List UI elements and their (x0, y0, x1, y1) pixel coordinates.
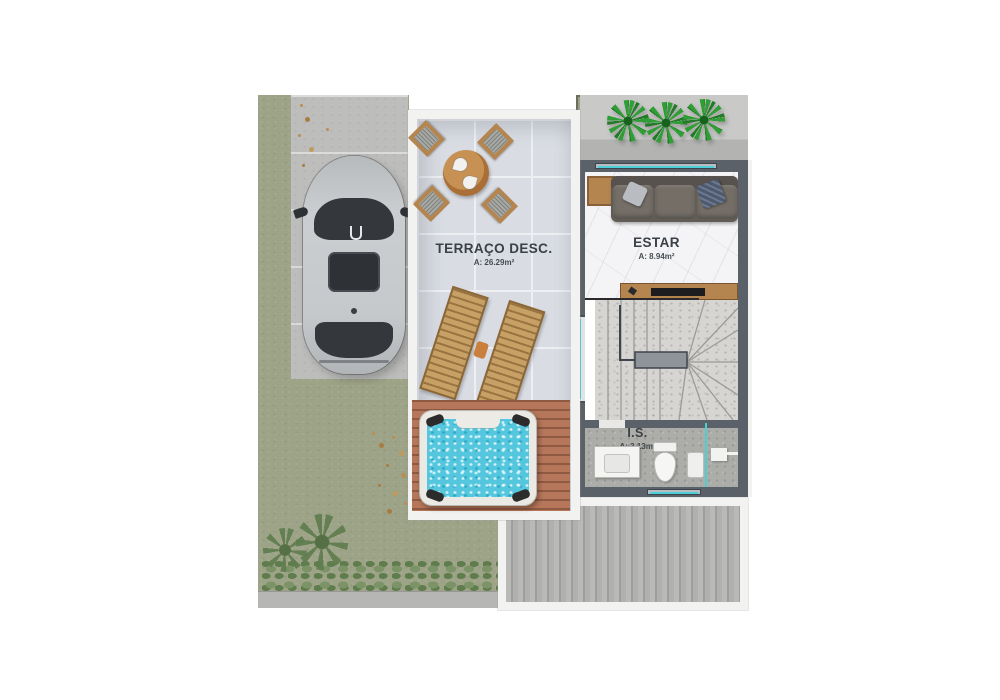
terrace: TERRAÇO DESC. A: 26.29m² (408, 110, 580, 520)
jacuzzi-water (427, 419, 529, 497)
room-area: A: 26.29m² (417, 258, 571, 268)
terraco-label: TERRAÇO DESC. A: 26.29m² (417, 241, 571, 268)
jacuzzi-control-panel (456, 413, 500, 428)
tv (651, 288, 705, 296)
estar-label: ESTAR A: 8.94m² (605, 235, 708, 262)
console-object (628, 287, 637, 296)
jacuzzi-deck (412, 400, 570, 511)
chair (413, 185, 450, 222)
chair (481, 187, 518, 224)
room-name: I.S. (600, 426, 675, 442)
toilet-tank (653, 442, 677, 452)
window (647, 489, 701, 495)
sofa (611, 176, 738, 222)
shower-glass-partition (705, 423, 707, 487)
jacuzzi (419, 410, 537, 506)
stair-treads (595, 300, 738, 420)
pebbles (372, 432, 375, 435)
winder-staircase (595, 300, 738, 420)
window (595, 163, 717, 169)
shower-arm (727, 452, 738, 455)
car-detail (351, 308, 357, 314)
house: ESTAR A: 8.94m² (575, 160, 748, 497)
car-sunroof (328, 252, 380, 292)
toilet-bowl (654, 452, 676, 482)
car-rear-window (315, 322, 393, 358)
wall (738, 160, 748, 497)
pebbles (300, 104, 303, 107)
shower-head (711, 448, 727, 461)
plant-icon (607, 100, 649, 142)
room-name: TERRAÇO DESC. (417, 241, 571, 258)
plate (453, 157, 469, 173)
sofa-cushion (655, 185, 695, 219)
car-top-view (303, 156, 405, 374)
vanity-sink (594, 446, 640, 478)
chair (408, 120, 445, 157)
dining-table (443, 150, 489, 196)
car-roof-logo (350, 226, 362, 240)
plant-icon (683, 99, 725, 141)
plate (462, 175, 478, 191)
toilet (651, 442, 679, 485)
car-trunk-line (319, 360, 389, 363)
lounger-cushion (473, 341, 489, 360)
plant-icon (645, 102, 687, 144)
room-area: A: 8.94m² (605, 252, 708, 262)
floor-plan-canvas: ESTAR A: 8.94m² (0, 0, 1000, 700)
curb (258, 591, 507, 608)
chair (477, 123, 514, 160)
room-name: ESTAR (605, 235, 708, 252)
bush-icon (296, 514, 348, 570)
bidet (687, 452, 704, 478)
sink-basin (604, 454, 630, 473)
